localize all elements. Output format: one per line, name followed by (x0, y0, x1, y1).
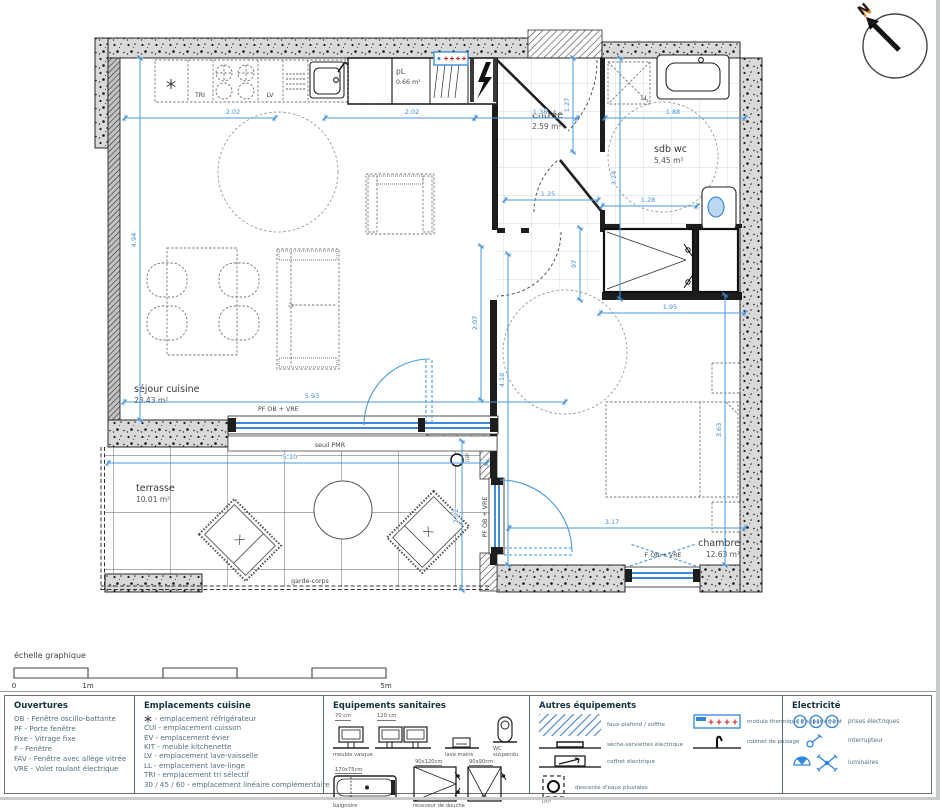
chambre-west-window: PF OB + VRE (482, 478, 572, 555)
legend-electricite: Electricité prises électriques interrupt… (782, 696, 931, 793)
dining-table (147, 248, 259, 355)
turning-circle-sejour (218, 112, 338, 232)
legend-item-text: interrupteur (848, 738, 883, 744)
legend-sanitaires: Equipements sanitaires 70 cm 120 cm (323, 696, 529, 793)
chambre-name: chambre (698, 538, 740, 549)
dim-label: 2.07 (471, 316, 479, 330)
scale-1m: 1m (82, 682, 93, 690)
north-arrow: N N (855, 1, 927, 78)
legend-item: FAV - Fenêtre avec allège vitrée (14, 754, 130, 764)
legend-item-text: descente d'eaux pluviales (575, 785, 648, 791)
douche-caption: receveur de douche (413, 803, 465, 809)
legend-item: F - Fenêtre (14, 744, 130, 754)
dim-label: 1.25 (541, 190, 555, 198)
legend-item: CUI - emplacement cuisson (144, 723, 319, 732)
legend-item: OB - Fenêtre oscillo-battante (14, 714, 130, 724)
module-thermique-icon (693, 714, 741, 730)
door-swing-chambre-window (500, 480, 572, 552)
legend-item: Fixe - Vitrage fixe (14, 734, 130, 744)
coffret-electrique-icon (539, 754, 601, 770)
chambre-area: 12.63 m² (706, 550, 740, 559)
floor-plan-page: { "colors": { "dimension_blue": "#4a9ae0… (0, 0, 940, 800)
lave-mains-group: lave mains (445, 731, 479, 758)
vasque-group: 70 cm 120 cm (333, 714, 431, 758)
scale-bar-title: échelle graphique (14, 650, 86, 660)
dim-label: 97 (570, 260, 578, 268)
chair (219, 306, 259, 340)
legend-cuisine-title: Emplacements cuisine (144, 701, 319, 711)
legend-electricite-title: Electricité (792, 701, 927, 711)
legend-autres-title: Autres équipements (539, 701, 778, 711)
legend-item-text: luminaires (848, 760, 878, 766)
legend-item: PF - Porte fenêtre (14, 724, 130, 734)
cooktop-burners (216, 65, 254, 99)
legend-top-rule (0, 691, 940, 692)
dep-label: DEP (465, 453, 471, 462)
dim-label: 1.38 (533, 108, 547, 116)
terrasse-area: 10.01 m² (136, 495, 170, 504)
wc-suspendu-icon (493, 715, 517, 745)
entry-storage-bays (348, 52, 497, 104)
kitchen-sink-icon (310, 62, 348, 98)
garde-corps-label: garde-corps (291, 578, 329, 585)
kitchen-counter: TRI LV (155, 60, 348, 102)
hood-icon (286, 74, 305, 89)
nightstand (712, 363, 740, 393)
sejour-window-label: PF OB + VRE (258, 406, 299, 413)
dim-label: 1.95 (663, 303, 677, 311)
legend-item: KIT - meuble kitchenette (144, 742, 319, 751)
robinet-puisage-icon (693, 733, 741, 751)
dim-label: 1.28 (641, 196, 655, 204)
vasque-caption: meuble vasque (333, 752, 373, 758)
lave-mains-caption: lave mains (445, 752, 473, 758)
dep-pipe (451, 454, 463, 466)
lave-mains-icon (445, 731, 479, 751)
scale-bar: échelle graphique 0 1m 5m (12, 650, 392, 690)
legend-item: EV - emplacement évier (144, 733, 319, 742)
chambre-south-window: F OB + VRE (625, 544, 700, 587)
pl-name: pL (396, 67, 406, 76)
legend-item: 30 / 45 / 60 - emplacement linéaire comp… (144, 780, 319, 789)
dim-label: 3.63 (715, 423, 723, 437)
legend-item-text: prises électriques (848, 719, 899, 725)
douche-1-dim: 90x120cm (415, 760, 442, 767)
douche-2-dim: 90x90cm (469, 760, 493, 767)
legend-item: TRI - emplacement tri sélectif (144, 770, 319, 779)
floor-plan: TRI LV (0, 0, 940, 690)
legend-item: LV - emplacement lave-vaisselle (144, 751, 319, 760)
interrupteur-icon (792, 734, 840, 748)
dim-label: 5.93 (305, 392, 319, 400)
dim-label: 1.27 (563, 98, 571, 112)
douche-group: 90x120cm 90x90cm (413, 760, 507, 809)
placard (698, 229, 738, 292)
terrasse-name: terrasse (136, 483, 175, 494)
scale-5m: 5m (380, 682, 391, 690)
legend-autres: Autres équipements faux-plafond / soffit… (529, 696, 782, 793)
faux-plafond-icon (539, 714, 601, 736)
legend-item-text: coffret électrique (607, 759, 655, 765)
snowflake-icon (144, 715, 152, 723)
legend-ouvertures: Ouvertures OB - Fenêtre oscillo-battante… (5, 696, 134, 793)
terrace-table (314, 481, 372, 539)
legend-item: LL - emplacement lave-linge (144, 761, 319, 770)
dim-label: 4.94 (130, 233, 138, 247)
legend-item: VRE - Volet roulant électrique (14, 764, 130, 774)
legend-item: - emplacement réfrigérateur (144, 714, 319, 723)
wc-caption: WC suspendu (493, 746, 525, 758)
chambre-south-window-label: F OB + VRE (645, 552, 682, 559)
sejour-furniture (147, 112, 434, 369)
dim-label: 2.02 (405, 108, 419, 116)
baignoire-caption: baignoire (333, 803, 357, 809)
vasque-120-icon (375, 721, 431, 751)
turning-circle-chambre (503, 290, 627, 414)
sdb-area: 5.45 m² (654, 156, 683, 165)
sejour-name: séjour cuisine (134, 384, 200, 395)
wc-suspendu (702, 187, 736, 231)
legend-sanitaires-title: Equipements sanitaires (333, 701, 525, 711)
wc-group: WC suspendu (493, 715, 525, 758)
ll-label: LL (641, 95, 649, 102)
sejour-window: PF OB + VRE seuil PMR (228, 359, 498, 451)
legend-cuisine: Emplacements cuisine - emplacement réfri… (134, 696, 323, 793)
sejour-area: 23.43 m² (134, 396, 168, 405)
baignoire-group: 170x75cm baignoire (333, 768, 399, 809)
legend-item: faux-plafond / soffite (539, 714, 683, 736)
kitchen-lv-label: LV (266, 92, 274, 99)
legend-item-text: sèche-serviettes électrique (607, 742, 683, 748)
chambre-west-window-label: PF OB + VRE (482, 497, 489, 538)
sdb-name: sdb wc (654, 144, 687, 155)
page-edge-right (936, 0, 940, 800)
baignoire-dim: 170x75cm (335, 768, 362, 775)
entree-area: 2.59 m² (532, 122, 561, 131)
dim-label: 2.02 (226, 108, 240, 116)
door-swing-sejour-window (364, 359, 430, 425)
dim-label: 5.10 (283, 453, 297, 461)
legend-item: sèche-serviettes électrique (539, 739, 683, 751)
thermal-module-icon (434, 52, 468, 65)
legend-item: interrupteur (792, 734, 927, 748)
floor-tiles (104, 58, 740, 587)
legend-item: luminaires (792, 753, 927, 773)
entree-tiles (497, 58, 600, 228)
luminaires-icon (792, 753, 840, 773)
sofa (277, 249, 339, 369)
scale-0: 0 (12, 682, 16, 690)
legend-panel: Ouvertures OB - Fenêtre oscillo-battante… (4, 695, 932, 794)
armchair (366, 174, 434, 234)
bed (606, 402, 738, 497)
legend-item-text: - emplacement réfrigérateur (155, 714, 256, 723)
pl-area: 0.66 m² (396, 79, 421, 86)
legend-item: prises électriques (792, 714, 927, 729)
dim-label: 3.24 (610, 171, 618, 185)
seche-serviettes-icon (539, 739, 601, 751)
legend-ouvertures-title: Ouvertures (14, 701, 130, 711)
chair (219, 263, 259, 297)
seuil-pmr-label: seuil PMR (315, 442, 346, 449)
vasque-120-dim: 120 cm (377, 714, 396, 721)
fridge-snowflake-icon (167, 79, 176, 89)
corridor-tiles (497, 232, 600, 292)
dim-label: 4.18 (498, 373, 506, 387)
vasque-70-icon (333, 721, 369, 751)
kitchen-tri-label: TRI (194, 92, 205, 99)
dim-label: 1.88 (666, 108, 680, 116)
vasque-70-dim: 70 cm (335, 714, 351, 721)
dim-label: 3.17 (605, 518, 619, 526)
vasque (657, 55, 729, 99)
legend-item: coffret électrique (539, 754, 683, 770)
shower (604, 229, 693, 292)
prises-icon (792, 714, 840, 729)
dim-label: 2.02 (452, 509, 460, 523)
legend-item-text: faux-plafond / soffite (607, 722, 665, 728)
